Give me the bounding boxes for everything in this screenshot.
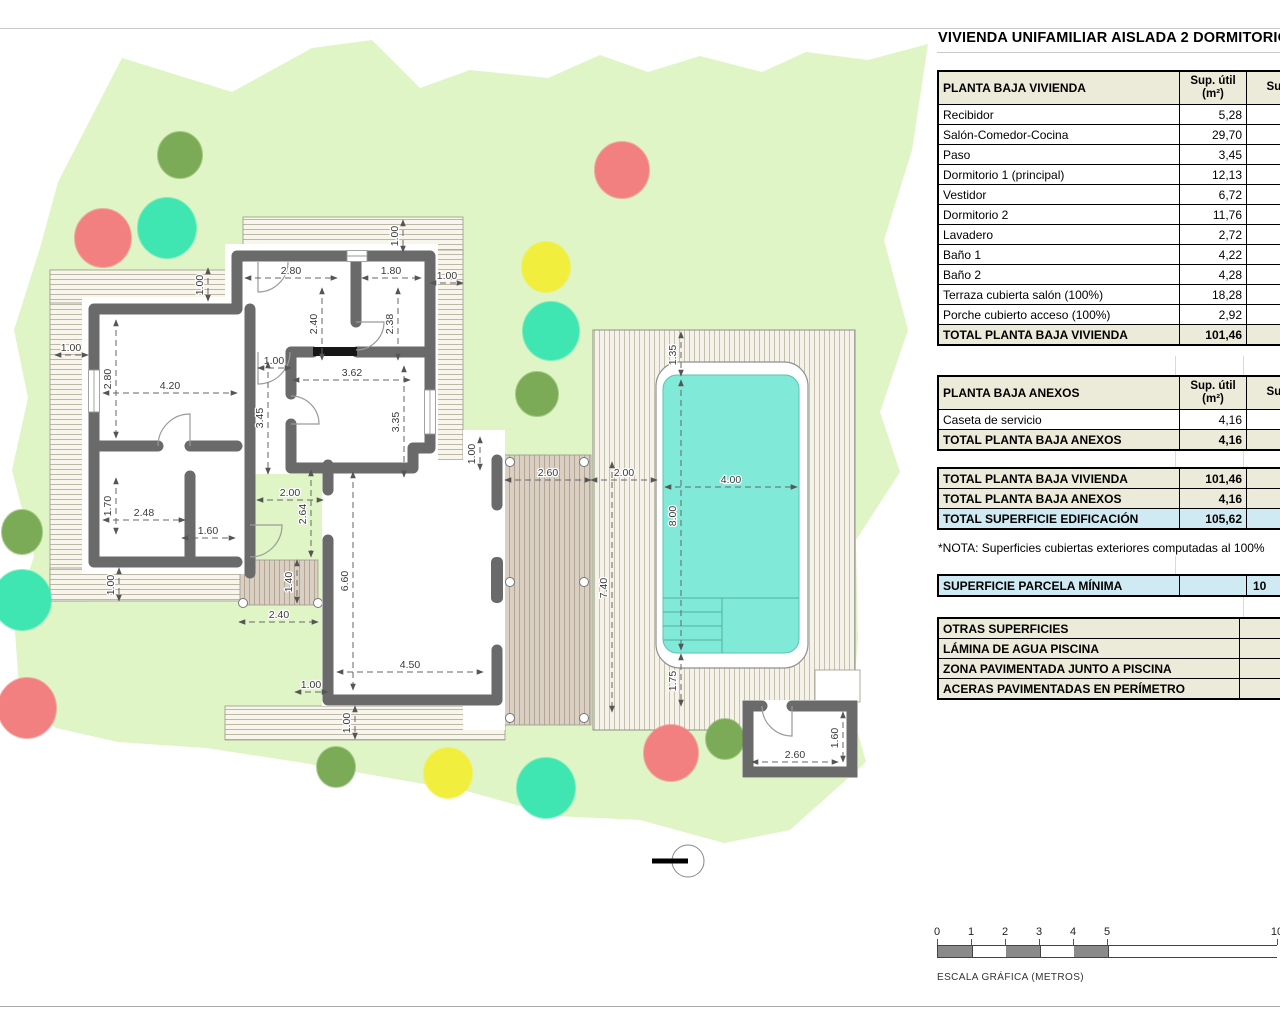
- site-plan: 4.202.801.001.702.481.601.002.802.401.80…: [0, 0, 935, 1015]
- tree-yellow: [522, 242, 570, 292]
- table-row: Baño 24,28: [938, 265, 1280, 285]
- dimension-label: 6.60: [339, 571, 351, 592]
- col-header-planta-baja-vivienda: PLANTA BAJA VIVIENDA: [938, 71, 1180, 105]
- dimension-label: 1.75: [667, 671, 679, 692]
- dimension-label: 1.60: [829, 728, 841, 749]
- table-row: LÁMINA DE AGUA PISCINA: [938, 639, 1280, 659]
- dimension-label: 1.00: [466, 444, 478, 465]
- tree-olive: [158, 132, 202, 178]
- dimension-label: 1.80: [381, 265, 402, 277]
- scale-number: 5: [1104, 926, 1110, 938]
- dimension-label: 1.00: [437, 270, 458, 282]
- dimension-label: 2.64: [297, 504, 309, 525]
- tree-olive: [2, 510, 42, 554]
- table-header-row: PLANTA BAJA ANEXOS Sup. útil (m²) Sup.: [938, 376, 1280, 410]
- col-header-sup-2: Sup.: [1247, 376, 1280, 410]
- col-header-sup-util: Sup. útil (m²): [1180, 376, 1247, 410]
- dimension-label: 1.70: [102, 496, 114, 517]
- scale-number: 3: [1036, 926, 1042, 938]
- table-row: TOTAL SUPERFICIE EDIFICACIÓN105,62: [938, 509, 1280, 530]
- table-row: Caseta de servicio4,16: [938, 410, 1280, 430]
- table-row: ZONA PAVIMENTADA JUNTO A PISCINA: [938, 659, 1280, 679]
- dimension-label: 3.45: [254, 408, 266, 429]
- table-otras-superficies: OTRAS SUPERFICIES LÁMINA DE AGUA PISCINA…: [937, 617, 1280, 700]
- table-row: ACERAS PAVIMENTADAS EN PERÍMETRO: [938, 679, 1280, 700]
- dimension-label: 2.00: [280, 487, 301, 499]
- scale-number: 2: [1002, 926, 1008, 938]
- dimension-label: 1.40: [283, 572, 295, 593]
- tree-olive: [317, 747, 355, 787]
- dimension-label: 2.80: [281, 265, 302, 277]
- table-parcela-minima: SUPERFICIE PARCELA MÍNIMA 10: [937, 574, 1280, 597]
- north-symbol-icon: [652, 845, 704, 877]
- table-row: SUPERFICIE PARCELA MÍNIMA 10: [938, 575, 1280, 596]
- scale-bar: [937, 945, 1277, 958]
- tree-teal: [523, 302, 579, 360]
- table-row: TOTAL PLANTA BAJA ANEXOS4,16: [938, 489, 1280, 509]
- scale-number: 4: [1070, 926, 1076, 938]
- table-row: Porche cubierto acceso (100%)2,92: [938, 305, 1280, 325]
- dimension-label: 1.00: [389, 226, 401, 247]
- dimension-label: 1.00: [105, 575, 117, 596]
- dimension-label: 2.00: [614, 467, 635, 479]
- tree-red: [75, 209, 131, 267]
- dimension-label: 2.60: [785, 749, 806, 761]
- total-row: TOTAL PLANTA BAJA VIVIENDA 101,46: [938, 325, 1280, 346]
- dimension-label: 4.20: [160, 380, 181, 392]
- table-row: Baño 14,22: [938, 245, 1280, 265]
- tree-red: [595, 142, 649, 198]
- scale-caption: ESCALA GRÁFICA (METROS): [937, 972, 1084, 983]
- table-header-row: OTRAS SUPERFICIES: [938, 618, 1280, 639]
- title-underline: [937, 52, 1280, 53]
- dimension-label: 2.60: [538, 467, 559, 479]
- tree-red: [644, 725, 698, 781]
- drawing-sheet: 4.202.801.001.702.481.601.002.802.401.80…: [0, 0, 1280, 1024]
- gridline: [1243, 450, 1244, 467]
- drawing-title: VIVIENDA UNIFAMILIAR AISLADA 2 DORMITORI…: [938, 30, 1280, 46]
- tree-teal: [517, 758, 575, 818]
- table-header-row: PLANTA BAJA VIVIENDA Sup. útil (m²) Sup.: [938, 71, 1280, 105]
- dimension-label: 2.40: [269, 609, 290, 621]
- total-row: TOTAL PLANTA BAJA ANEXOS 4,16: [938, 430, 1280, 451]
- dimension-label: 1.60: [198, 525, 219, 537]
- tree-teal: [138, 198, 196, 258]
- dimension-label: 2.80: [102, 369, 114, 390]
- table-row: Terraza cubierta salón (100%)18,28: [938, 285, 1280, 305]
- gridline: [1175, 450, 1176, 467]
- deck-notch: [815, 670, 860, 702]
- tree-olive: [706, 719, 744, 759]
- table-row: Vestidor6,72: [938, 185, 1280, 205]
- dimension-label: 4.00: [721, 474, 742, 486]
- tree-yellow: [424, 748, 472, 798]
- dimension-label: 3.62: [342, 367, 363, 379]
- col-header-sup-2: Sup.: [1247, 71, 1280, 105]
- scale-number: 10: [1271, 926, 1280, 938]
- table-row: Salón-Comedor-Cocina29,70: [938, 125, 1280, 145]
- table-row: Paso3,45: [938, 145, 1280, 165]
- dimension-label: 1.00: [194, 275, 206, 296]
- gridline: [1175, 556, 1176, 574]
- dimension-label: 1.35: [667, 345, 679, 366]
- tree-teal: [0, 570, 51, 630]
- table-planta-baja-anexos: PLANTA BAJA ANEXOS Sup. útil (m²) Sup. C…: [937, 375, 1280, 451]
- gridline: [1243, 356, 1244, 375]
- col-header-planta-baja-anexos: PLANTA BAJA ANEXOS: [938, 376, 1180, 410]
- summary-panel: VIVIENDA UNIFAMILIAR AISLADA 2 DORMITORI…: [937, 0, 1280, 1024]
- table-row: Dormitorio 1 (principal)12,13: [938, 165, 1280, 185]
- dimension-label: 3.35: [390, 412, 402, 433]
- sliding-door: [313, 347, 357, 356]
- dimension-label: 2.40: [308, 314, 320, 335]
- dimension-label: 7.40: [598, 578, 610, 599]
- col-header-sup-util: Sup. útil (m²): [1180, 71, 1247, 105]
- dimension-label: 1.00: [301, 679, 322, 691]
- dimension-label: 8.00: [667, 506, 679, 527]
- scale-number: 0: [934, 926, 940, 938]
- gridline: [1243, 597, 1244, 617]
- dimension-label: 1.00: [61, 342, 82, 354]
- table-row: Dormitorio 211,76: [938, 205, 1280, 225]
- table-row: Recibidor5,28: [938, 105, 1280, 125]
- tree-red: [0, 678, 56, 738]
- gridline: [1175, 356, 1176, 375]
- graphic-scale: 01234510 ESCALA GRÁFICA (METROS): [937, 926, 1280, 996]
- dimension-label: 1.00: [264, 355, 285, 367]
- table-row: TOTAL PLANTA BAJA VIVIENDA101,46: [938, 468, 1280, 489]
- dimension-label: 4.50: [400, 659, 421, 671]
- dimension-label: 2.38: [384, 314, 396, 335]
- dimension-label: 2.48: [134, 507, 155, 519]
- nota-text: *NOTA: Superficies cubiertas exteriores …: [938, 541, 1265, 555]
- table-planta-baja-vivienda: PLANTA BAJA VIVIENDA Sup. útil (m²) Sup.…: [937, 70, 1280, 346]
- table-row: Lavadero2,72: [938, 225, 1280, 245]
- table-totales: TOTAL PLANTA BAJA VIVIENDA101,46TOTAL PL…: [937, 467, 1280, 530]
- tree-olive: [516, 372, 558, 416]
- dimension-label: 1.00: [341, 713, 353, 734]
- scale-number: 1: [968, 926, 974, 938]
